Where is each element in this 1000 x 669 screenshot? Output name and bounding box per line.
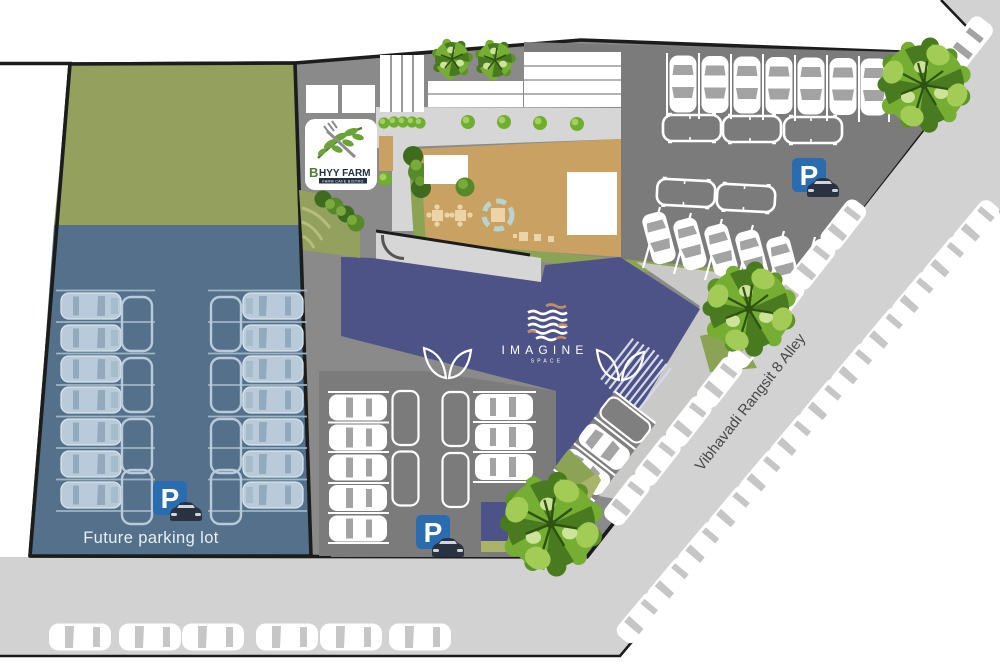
svg-text:IMAGINE: IMAGINE (501, 343, 588, 357)
svg-text:B: B (309, 165, 318, 180)
svg-text:Future parking lot: Future parking lot (83, 529, 219, 547)
svg-text:HYY FARM: HYY FARM (319, 168, 371, 179)
svg-text:FARM CAFE BISTRO: FARM CAFE BISTRO (322, 179, 363, 183)
svg-text:SPACE: SPACE (531, 359, 564, 365)
